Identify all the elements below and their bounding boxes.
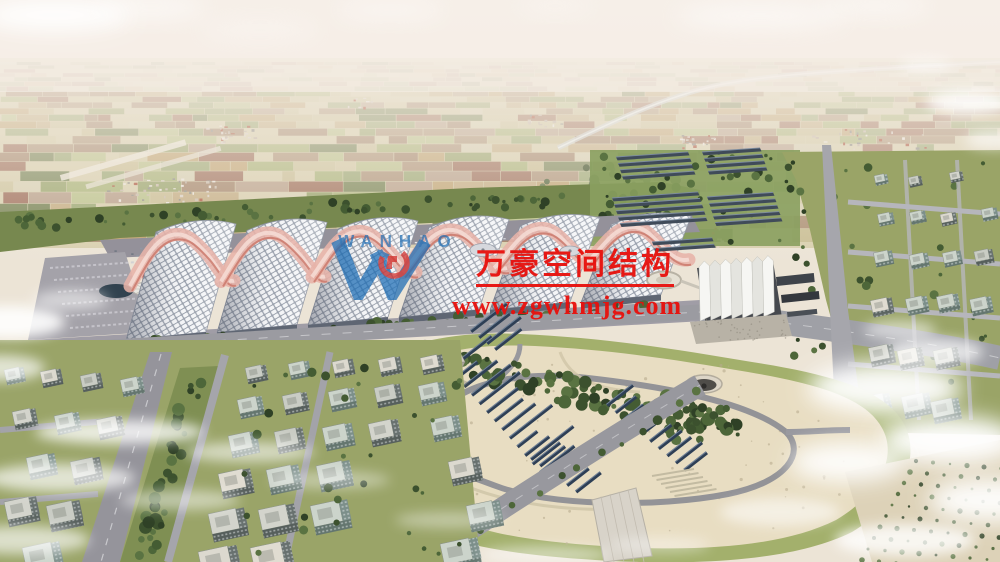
scene-canvas xyxy=(0,0,1000,562)
aerial-rendering-image: WANHAO 万豪空间结构 www.zgwhmjg.com xyxy=(0,0,1000,562)
